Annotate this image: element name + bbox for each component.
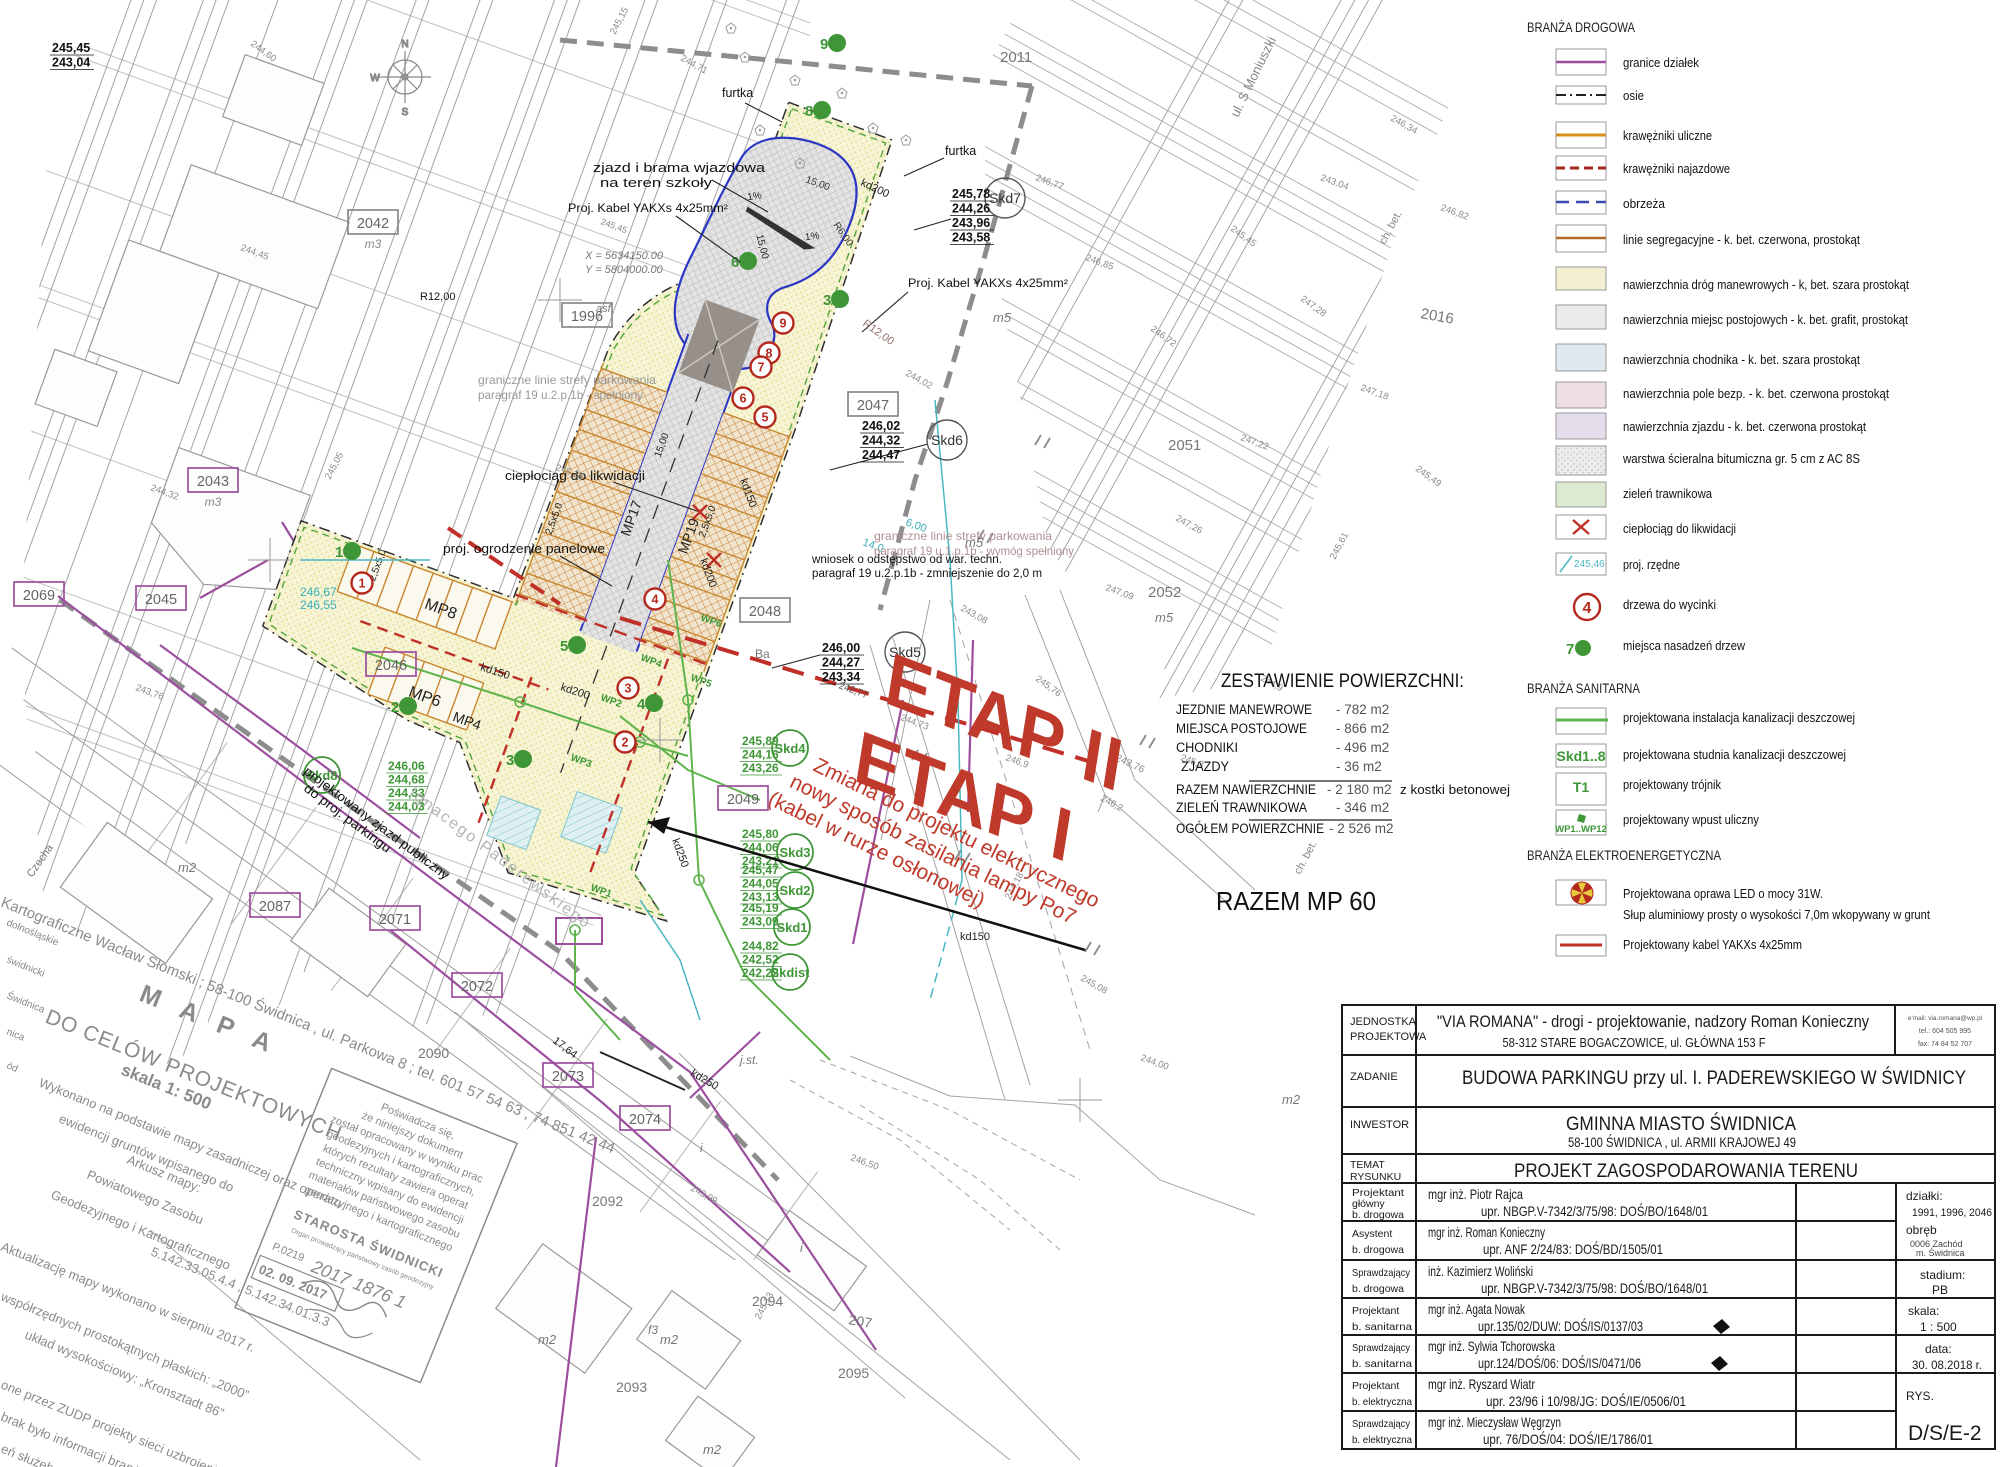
svg-text:1%: 1% — [804, 230, 820, 243]
svg-text:mgr inż. Piotr Rajca: mgr inż. Piotr Rajca — [1428, 1186, 1523, 1202]
svg-text:data:: data: — [1925, 1342, 1952, 1356]
svg-text:2042: 2042 — [357, 216, 389, 232]
svg-text:paragraf 19 u.2.p.1b - zmniejs: paragraf 19 u.2.p.1b - zmniejszenie do 2… — [812, 568, 1042, 580]
svg-text:2073: 2073 — [552, 1069, 584, 1085]
svg-text:m5: m5 — [993, 310, 1012, 325]
svg-text:JEZDNIE MANEWROWE: JEZDNIE MANEWROWE — [1176, 702, 1312, 717]
svg-text:b. elektryczna: b. elektryczna — [1352, 1434, 1412, 1446]
svg-text:INWESTOR: INWESTOR — [1350, 1119, 1409, 1131]
svg-text:245,78: 245,78 — [952, 187, 990, 201]
svg-text:2087: 2087 — [259, 899, 291, 915]
svg-text:fax: 74 84 52 707: fax: 74 84 52 707 — [1918, 1041, 1972, 1048]
svg-text:2045: 2045 — [145, 592, 177, 608]
svg-text:2095: 2095 — [838, 1365, 869, 1381]
svg-text:na teren szkoły: na teren szkoły — [600, 175, 713, 190]
svg-text:i: i — [800, 1241, 803, 1255]
svg-text:warstwa ścieralna bitumiczna g: warstwa ścieralna bitumiczna gr. 5 cm z … — [1622, 451, 1860, 466]
svg-text:projektowana studnia kanalizac: projektowana studnia kanalizacji deszczo… — [1623, 747, 1846, 762]
svg-text:58-312 STARE BOGACZOWICE, ul.: 58-312 STARE BOGACZOWICE, ul. GŁÓWNA 153… — [1503, 1035, 1766, 1050]
svg-text:2074: 2074 — [629, 1112, 661, 1128]
svg-text:BRANŻA SANITARNA: BRANŻA SANITARNA — [1527, 679, 1641, 696]
svg-text:b. sanitarna: b. sanitarna — [1352, 1358, 1412, 1370]
svg-text:245,19: 245,19 — [742, 901, 779, 915]
svg-text:projektowany wpust uliczny: projektowany wpust uliczny — [1623, 812, 1759, 827]
svg-text:PB: PB — [1932, 1283, 1948, 1297]
svg-text:upr. NBGP.V-7342/3/75/98: DOŚ/: upr. NBGP.V-7342/3/75/98: DOŚ/BO/1648/01 — [1481, 1202, 1708, 1219]
svg-text:projektowany trójnik: projektowany trójnik — [1623, 777, 1721, 792]
svg-text:proj. ogrodzenie panelowe: proj. ogrodzenie panelowe — [443, 541, 605, 556]
svg-text:244,82: 244,82 — [742, 939, 779, 953]
svg-text:2048: 2048 — [749, 604, 781, 620]
svg-text:proj. rzędne: proj. rzędne — [1623, 557, 1680, 572]
svg-text:stadium:: stadium: — [1920, 1268, 1965, 1282]
svg-text:i: i — [700, 1141, 703, 1155]
svg-text:243,26: 243,26 — [742, 761, 779, 775]
svg-text:b. sanitarna: b. sanitarna — [1352, 1321, 1412, 1333]
svg-text:Asystent: Asystent — [1352, 1228, 1392, 1240]
svg-text:Projektowany kabel YAKXs 4x25m: Projektowany kabel YAKXs 4x25mm — [1623, 937, 1802, 952]
svg-text:5: 5 — [560, 638, 568, 655]
svg-text:BRANŻA ELEKTROENERGETYCZNA: BRANŻA ELEKTROENERGETYCZNA — [1527, 846, 1722, 863]
svg-text:2047: 2047 — [857, 398, 889, 414]
svg-text:m2: m2 — [178, 860, 197, 875]
svg-text:245,89: 245,89 — [742, 734, 779, 748]
svg-text:ciepłociąg do likwidacji: ciepłociąg do likwidacji — [1623, 521, 1736, 536]
svg-text:X = 5634150.00: X = 5634150.00 — [584, 250, 664, 262]
svg-text:Projektant: Projektant — [1352, 1380, 1399, 1392]
svg-text:drzewa do wycinki: drzewa do wycinki — [1623, 597, 1716, 612]
svg-text:245,80: 245,80 — [742, 827, 779, 841]
svg-text:2011: 2011 — [1000, 49, 1032, 66]
svg-text:6: 6 — [740, 392, 747, 406]
svg-text:4: 4 — [1583, 600, 1592, 617]
svg-text:ZADANIE: ZADANIE — [1350, 1071, 1398, 1083]
svg-text:WP1..WP12: WP1..WP12 — [1555, 824, 1607, 835]
svg-text:Skd6: Skd6 — [931, 432, 963, 448]
svg-text:osie: osie — [1623, 88, 1644, 103]
svg-text:242,52: 242,52 — [742, 953, 779, 967]
svg-text:1: 1 — [359, 577, 366, 591]
svg-text:ZJAZDY: ZJAZDY — [1181, 759, 1229, 774]
svg-text:m2: m2 — [538, 1332, 557, 1347]
svg-text:2092: 2092 — [592, 1193, 623, 1209]
svg-text:m3: m3 — [205, 495, 222, 509]
svg-text:Y = 5804000.00: Y = 5804000.00 — [585, 264, 664, 276]
svg-text:OGÓŁEM POWIERZCHNIE: OGÓŁEM POWIERZCHNIE — [1176, 821, 1324, 836]
svg-text:mgr inż. Ryszard Wiatr: mgr inż. Ryszard Wiatr — [1428, 1376, 1535, 1392]
svg-text:upr.135/02/DUW: DOŚ/IS/0137/03: upr.135/02/DUW: DOŚ/IS/0137/03 — [1478, 1317, 1643, 1334]
svg-text:2: 2 — [622, 736, 629, 750]
svg-text:m5: m5 — [1155, 610, 1174, 625]
svg-text:skala:: skala: — [1908, 1304, 1939, 1318]
svg-text:mgr inż. Roman Konieczny: mgr inż. Roman Konieczny — [1428, 1224, 1545, 1240]
svg-text:b. elektryczna: b. elektryczna — [1352, 1396, 1412, 1408]
svg-text:1991, 1996, 2046: 1991, 1996, 2046 — [1912, 1207, 1992, 1219]
svg-text:furtka: furtka — [945, 144, 976, 158]
svg-text:TEMAT: TEMAT — [1350, 1159, 1385, 1171]
svg-text:R12,00: R12,00 — [420, 291, 455, 303]
svg-text:S: S — [402, 107, 409, 118]
svg-text:3: 3 — [506, 752, 514, 769]
svg-text:PROJEKTOWA: PROJEKTOWA — [1350, 1031, 1427, 1043]
svg-text:Proj. Kabel YAKXs 4x25mm²: Proj. Kabel YAKXs 4x25mm² — [568, 203, 728, 215]
svg-text:244,27: 244,27 — [822, 656, 860, 670]
svg-text:4: 4 — [637, 696, 646, 713]
svg-text:BUDOWA PARKINGU przy ul. I. PA: BUDOWA PARKINGU przy ul. I. PADEREWSKIEG… — [1462, 1065, 1966, 1089]
svg-text:246,67: 246,67 — [300, 585, 337, 599]
svg-text:kd150: kd150 — [960, 931, 990, 943]
svg-text:W: W — [370, 73, 380, 84]
svg-text:graniczne linie strefy parkowa: graniczne linie strefy parkowania — [478, 373, 656, 387]
svg-text:upr. NBGP.V-7342/3/75/98: DOŚ/: upr. NBGP.V-7342/3/75/98: DOŚ/BO/1648/01 — [1481, 1279, 1708, 1296]
svg-text:RAZEM NAWIERZCHNIE: RAZEM NAWIERZCHNIE — [1176, 782, 1316, 797]
svg-text:j.st.: j.st. — [738, 1053, 759, 1067]
svg-text:4: 4 — [652, 593, 659, 607]
svg-text:244,68: 244,68 — [388, 773, 425, 787]
svg-text:244,47: 244,47 — [862, 448, 900, 462]
svg-text:2046: 2046 — [375, 658, 407, 674]
svg-text:9: 9 — [820, 36, 828, 53]
svg-text:Słup aluminiowy prosty o wysok: Słup aluminiowy prosty o wysokości 7,0m … — [1623, 907, 1930, 922]
svg-text:tel.: 604 505 995: tel.: 604 505 995 — [1919, 1028, 1971, 1035]
svg-text:paragraf 19 u.2.p.1b - spełnio: paragraf 19 u.2.p.1b - spełniony — [478, 388, 643, 402]
svg-text:RYS.: RYS. — [1906, 1389, 1934, 1403]
svg-text:zieleń trawnikowa: zieleń trawnikowa — [1623, 486, 1713, 501]
svg-text:245,46: 245,46 — [1574, 559, 1605, 570]
svg-text:miejsca nasadzeń drzew: miejsca nasadzeń drzew — [1623, 638, 1746, 653]
svg-text:e'mail: via.romana@wp.pl: e'mail: via.romana@wp.pl — [1908, 1015, 1983, 1022]
svg-text:m. Świdnica: m. Świdnica — [1916, 1247, 1965, 1258]
svg-text:243,96: 243,96 — [952, 216, 990, 230]
svg-text:243,09: 243,09 — [742, 915, 779, 929]
svg-text:T1: T1 — [1573, 779, 1590, 795]
svg-text:1: 1 — [335, 544, 343, 561]
svg-text:Skd1..8: Skd1..8 — [1556, 748, 1605, 764]
svg-text:m5: m5 — [965, 535, 984, 550]
svg-text:m2: m2 — [703, 1442, 722, 1457]
svg-text:245,47: 245,47 — [742, 863, 779, 877]
svg-text:"VIA ROMANA" - drogi - projekt: "VIA ROMANA" - drogi - projektowanie, na… — [1437, 1012, 1869, 1031]
svg-text:upr. ANF 2/24/83: DOŚ/BD/1505/: upr. ANF 2/24/83: DOŚ/BD/1505/01 — [1483, 1240, 1663, 1257]
svg-text:Sprawdzający: Sprawdzający — [1352, 1342, 1411, 1354]
svg-text:krawężniki najazdowe: krawężniki najazdowe — [1623, 161, 1730, 176]
svg-text:nawierzchnia chodnika - k. bet: nawierzchnia chodnika - k. bet. szara pr… — [1623, 352, 1860, 367]
svg-text:obręb: obręb — [1906, 1223, 1937, 1237]
svg-text:D/S/E-2: D/S/E-2 — [1908, 1422, 1982, 1445]
svg-text:BRANŻA DROGOWA: BRANŻA DROGOWA — [1527, 18, 1636, 35]
svg-text:- 866 m2: - 866 m2 — [1336, 721, 1389, 736]
svg-text:m3: m3 — [365, 237, 382, 251]
svg-text:Skd3: Skd3 — [779, 845, 810, 860]
svg-text:CHODNIKI: CHODNIKI — [1176, 740, 1238, 755]
svg-text:7: 7 — [1566, 641, 1574, 658]
svg-text:3: 3 — [823, 292, 831, 309]
svg-text:nawierzchnia zjazdu - k. bet.: nawierzchnia zjazdu - k. bet. czerwona p… — [1623, 419, 1866, 434]
svg-text:nawierzchnia dróg manewrowych: nawierzchnia dróg manewrowych - k, bet. … — [1623, 277, 1909, 292]
svg-text:furtka: furtka — [722, 86, 753, 100]
svg-text:zjazd i brama wjazdowa: zjazd i brama wjazdowa — [593, 160, 766, 175]
svg-text:2069: 2069 — [23, 588, 55, 604]
svg-text:Skd7: Skd7 — [989, 190, 1021, 206]
svg-text:m2: m2 — [660, 1332, 679, 1347]
svg-text:mgr inż. Agata Nowak: mgr inż. Agata Nowak — [1428, 1301, 1526, 1317]
svg-text:30. 08.2018 r.: 30. 08.2018 r. — [1912, 1358, 1982, 1372]
svg-text:N: N — [401, 39, 408, 50]
svg-text:2049: 2049 — [727, 792, 759, 808]
svg-text:2071: 2071 — [379, 912, 411, 928]
svg-text:246,02: 246,02 — [862, 419, 900, 433]
svg-text:nawierzchnia miejsc postojowyc: nawierzchnia miejsc postojowych - k. bet… — [1623, 312, 1908, 327]
svg-text:projektowana instalacja kanali: projektowana instalacja kanalizacji desz… — [1623, 710, 1855, 725]
svg-text:mgr inż. Mieczysław Węgrzyn: mgr inż. Mieczysław Węgrzyn — [1428, 1414, 1561, 1430]
svg-text:JEDNOSTKA: JEDNOSTKA — [1350, 1016, 1417, 1028]
svg-text:242,22: 242,22 — [742, 966, 779, 980]
svg-text:2: 2 — [391, 699, 399, 716]
svg-text:wniosek o odstępstwo od war. t: wniosek o odstępstwo od war. techn. — [811, 554, 1002, 566]
svg-text:- 782 m2: - 782 m2 — [1336, 702, 1389, 717]
svg-text:244,26: 244,26 — [952, 202, 990, 216]
svg-text:działki:: działki: — [1906, 1189, 1943, 1203]
svg-text:Ba: Ba — [755, 647, 770, 661]
svg-text:ZESTAWIENIE POWIERZCHNI:: ZESTAWIENIE POWIERZCHNI: — [1221, 671, 1464, 692]
svg-text:2072: 2072 — [461, 979, 493, 995]
svg-text:RYSUNKU: RYSUNKU — [1350, 1171, 1401, 1183]
svg-text:Projektowana oprawa LED o mocy: Projektowana oprawa LED o mocy 31W. — [1623, 886, 1823, 901]
svg-text:246,55: 246,55 — [300, 598, 337, 612]
svg-text:b. drogowa: b. drogowa — [1352, 1283, 1404, 1295]
svg-text:7: 7 — [758, 361, 765, 375]
svg-text:krawężniki uliczne: krawężniki uliczne — [1623, 128, 1712, 143]
svg-text:3: 3 — [625, 682, 632, 696]
svg-text:8: 8 — [805, 103, 813, 120]
svg-text:f3: f3 — [648, 1323, 658, 1337]
svg-text:2090: 2090 — [418, 1045, 449, 1061]
svg-text:Projektant: Projektant — [1352, 1305, 1399, 1317]
svg-text:5: 5 — [762, 411, 769, 425]
svg-text:linie segregacyjne - k. bet. c: linie segregacyjne - k. bet. czerwona, p… — [1623, 232, 1860, 247]
svg-text:9: 9 — [780, 317, 787, 331]
svg-text:m2: m2 — [1282, 1092, 1301, 1107]
svg-text:Sprawdzający: Sprawdzający — [1352, 1418, 1411, 1430]
svg-text:PROJEKT ZAGOSPODAROWANIA TEREN: PROJEKT ZAGOSPODAROWANIA TERENU — [1514, 1160, 1858, 1182]
svg-text:1 : 500: 1 : 500 — [1920, 1320, 1957, 1334]
svg-text:243,58: 243,58 — [952, 231, 990, 245]
svg-text:- 2 180 m2: - 2 180 m2 — [1327, 782, 1392, 797]
svg-text:ZIELEŃ TRAWNIKOWA: ZIELEŃ TRAWNIKOWA — [1176, 800, 1307, 815]
svg-text:244,16: 244,16 — [742, 748, 779, 762]
svg-text:obrzeża: obrzeża — [1623, 196, 1666, 211]
svg-text:244,32: 244,32 — [862, 434, 900, 448]
svg-text:z kostki betonowej: z kostki betonowej — [1400, 782, 1510, 797]
svg-text:granice działek: granice działek — [1623, 55, 1699, 70]
svg-text:Proj. Kabel YAKXs 4x25mm²: Proj. Kabel YAKXs 4x25mm² — [908, 278, 1068, 290]
svg-text:- 346 m2: - 346 m2 — [1336, 800, 1389, 815]
svg-text:58-100 ŚWIDNICA , ul. ARMII: 58-100 ŚWIDNICA , ul. ARMII KRAJOWEJ 49 — [1568, 1135, 1796, 1150]
svg-text:b. drogowa: b. drogowa — [1352, 1244, 1404, 1256]
svg-text:mgr inż. Sylwia Tchorowska: mgr inż. Sylwia Tchorowska — [1428, 1338, 1555, 1354]
svg-text:- 36 m2: - 36 m2 — [1336, 759, 1382, 774]
svg-text:2051: 2051 — [1168, 437, 1201, 454]
svg-text:MIEJSCA POSTOJOWE: MIEJSCA POSTOJOWE — [1176, 721, 1307, 736]
svg-text:nawierzchnia pole bezp. - k.: nawierzchnia pole bezp. - k. bet. czerwo… — [1623, 386, 1889, 401]
svg-text:Skd2: Skd2 — [779, 883, 810, 898]
svg-text:2043: 2043 — [197, 474, 229, 490]
svg-text:upr.124/DOŚ/06: DOŚ/IS/0471/06: upr.124/DOŚ/06: DOŚ/IS/0471/06 — [1478, 1354, 1641, 1371]
svg-text:graniczne linie strefy parkowa: graniczne linie strefy parkowania — [874, 529, 1052, 543]
svg-text:- 2 526 m2: - 2 526 m2 — [1329, 821, 1394, 836]
svg-text:246,00: 246,00 — [822, 641, 860, 655]
svg-text:upr. 23/96 i 10/98/JG: DOŚ/IE/: upr. 23/96 i 10/98/JG: DOŚ/IE/0506/01 — [1486, 1392, 1686, 1409]
svg-text:245,45: 245,45 — [52, 41, 90, 55]
svg-text:2052: 2052 — [1148, 584, 1181, 601]
svg-text:GMINNA MIASTO ŚWIDNICA: GMINNA MIASTO ŚWIDNICA — [1566, 1113, 1796, 1135]
svg-text:Sprawdzający: Sprawdzający — [1352, 1267, 1411, 1279]
svg-text:Skd4: Skd4 — [774, 741, 806, 756]
svg-text:2093: 2093 — [616, 1379, 647, 1395]
svg-text:246,06: 246,06 — [388, 759, 425, 773]
svg-text:243,04: 243,04 — [52, 56, 90, 70]
svg-text:244,05: 244,05 — [742, 877, 779, 891]
svg-text:inż. Kazimierz Woliński: inż. Kazimierz Woliński — [1428, 1263, 1533, 1279]
svg-text:b. drogowa: b. drogowa — [1352, 1209, 1404, 1221]
svg-text:Skd1: Skd1 — [776, 920, 807, 935]
svg-text:1996: 1996 — [571, 309, 603, 325]
svg-text:upr. 76/DOŚ/04: DOŚ/IE/1786/01: upr. 76/DOŚ/04: DOŚ/IE/1786/01 — [1483, 1430, 1653, 1447]
svg-text:RAZEM MP 60: RAZEM MP 60 — [1216, 886, 1376, 916]
svg-text:- 496 m2: - 496 m2 — [1336, 740, 1389, 755]
